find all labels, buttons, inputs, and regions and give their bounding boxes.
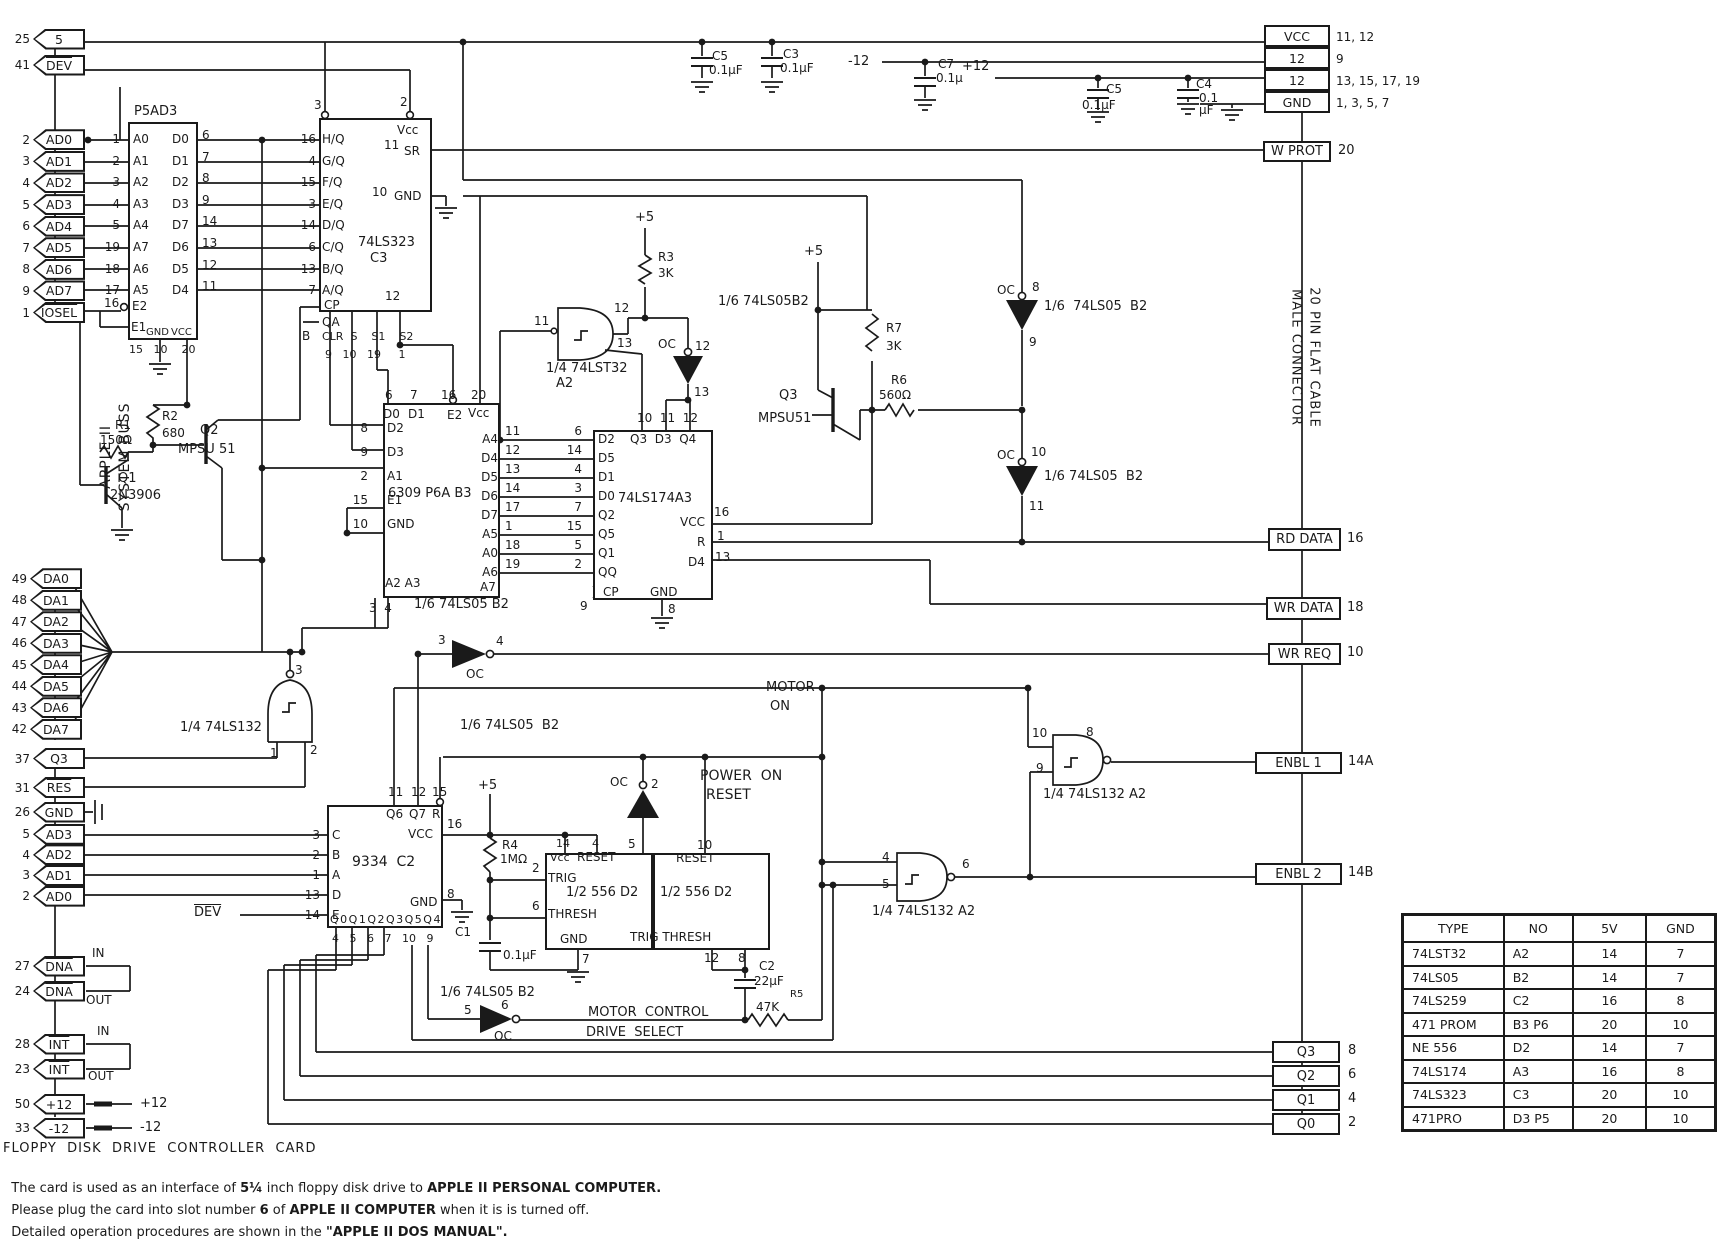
bus-pin-number: 49 bbox=[5, 572, 27, 586]
bus-tag: 8 AD6 bbox=[8, 259, 85, 281]
enbl1-in2-pin: 9 bbox=[1036, 762, 1044, 775]
timer1-thresh-pin: 6 bbox=[532, 900, 540, 913]
latch9334-left-pins: 3211314 bbox=[300, 825, 320, 925]
prom-bottom-pins: 15 10 20 bbox=[129, 344, 195, 356]
c1-val: 0.1μF bbox=[503, 949, 537, 962]
connector-enbl1-pin: 14A bbox=[1348, 755, 1373, 769]
motor-on-label-1: MOTOR bbox=[766, 681, 815, 695]
oc8-label: 1/6 74LS05 B2 bbox=[1044, 300, 1147, 314]
inv-top-oc: OC bbox=[658, 338, 676, 351]
connector-power-row: GND 1, 3, 5, 7 bbox=[1264, 92, 1420, 114]
enbl2-in2-pin: 5 bbox=[882, 878, 890, 891]
ls323-qa: QA bbox=[322, 316, 340, 329]
ls174-d4-pin: 13 bbox=[715, 551, 730, 564]
c2-ref: C2 bbox=[759, 960, 775, 973]
timer1-trig-pin: 2 bbox=[532, 862, 540, 875]
bus-tag-shape: AD1 bbox=[33, 151, 85, 172]
q1-ref: Q1 bbox=[118, 472, 137, 486]
bus-top-tags: 25 5 41 DEV bbox=[8, 28, 85, 80]
timer1-out-pin: 5 bbox=[628, 838, 636, 851]
bus-pin-number: 3 bbox=[8, 154, 30, 168]
motor-inv-out-pin: 6 bbox=[501, 999, 509, 1012]
plus5-q3: +5 bbox=[804, 245, 823, 259]
parts-table-header: TYPE NO 5V GND bbox=[1403, 915, 1715, 942]
timer2-pin12: 12 bbox=[704, 952, 719, 965]
prom-right-labels: D0D1D2D3D7D6D5D4 bbox=[172, 129, 189, 302]
latch9334-top-pin-r: 15 bbox=[432, 786, 447, 799]
ls174-r: R bbox=[697, 536, 705, 549]
prom-right-pins: 678914131211 bbox=[202, 125, 217, 298]
bus-tag: 3 AD1 bbox=[8, 151, 85, 173]
bus-tag-dna-in: 27DNA bbox=[8, 955, 85, 977]
bus-tag-shape: IOSEL bbox=[33, 302, 85, 323]
ls174-row-labels: D2D5D1D0Q2Q5Q1QQ bbox=[598, 430, 617, 582]
bus-tag: 9 AD7 bbox=[8, 280, 85, 302]
enbl2-gate-label: 1/4 74LS132 A2 bbox=[872, 905, 975, 919]
ls174-row-pins: 6144371552 bbox=[558, 422, 582, 574]
ls174-gnd-pin: 8 bbox=[668, 603, 676, 616]
connector-q0: Q0 bbox=[1272, 1113, 1340, 1135]
c4-ref: C4 bbox=[1196, 78, 1212, 91]
inv-top-out-pin: 13 bbox=[694, 386, 709, 399]
p12-label: +12 bbox=[140, 1097, 167, 1111]
bus-pin-number: 4 bbox=[8, 176, 30, 190]
dna-out-label: OUT bbox=[86, 994, 112, 1007]
r3-val: 3K bbox=[658, 267, 674, 280]
c7-val: 0.1μ bbox=[936, 72, 963, 85]
bus-tag-shape: RES bbox=[33, 777, 85, 798]
ls323-pins: 164153146137 bbox=[294, 129, 316, 302]
rom6309-top-pin-d1: 7 bbox=[410, 389, 418, 402]
por-inv-label: 1/6 74LS05 B2 bbox=[460, 719, 559, 733]
bus-tag: 49 DA0 bbox=[5, 568, 82, 590]
r6-val: 560Ω bbox=[879, 389, 911, 402]
bus-pin-number: 31 bbox=[8, 781, 30, 795]
connector-wrreq-pin: 10 bbox=[1347, 646, 1364, 660]
bus-pin-number: 43 bbox=[5, 701, 27, 715]
r7-val: 3K bbox=[886, 340, 902, 353]
bus-tag-shape: GND bbox=[33, 802, 85, 823]
bus-tag-shape: DA2 bbox=[30, 611, 82, 632]
connector-power-pins: 9 bbox=[1336, 52, 1344, 66]
bus-tag-dna-out: 24DNA bbox=[8, 980, 85, 1002]
ls323-labels: H/QG/QF/QE/QD/QC/QB/QA/Q bbox=[322, 129, 345, 302]
connector-wrreq: WR REQ bbox=[1268, 643, 1341, 665]
rom6309-row-pins: 111213141711819 bbox=[505, 422, 520, 574]
bus-pin-number: 5 bbox=[8, 198, 30, 212]
prom-left-labels: A0A1A2A3A4A7A6A5 bbox=[133, 129, 149, 302]
ls323-bottom-labels: CLR S S1 S2 bbox=[322, 331, 413, 343]
r2-val: 680 bbox=[162, 427, 185, 440]
r5-ref: R5 bbox=[790, 990, 803, 1001]
ls174-gnd: GND bbox=[650, 586, 678, 599]
connector-power-label: 12 bbox=[1264, 69, 1330, 91]
connector-power-row: 12 9 bbox=[1264, 48, 1420, 70]
connector-power-pins: 1, 3, 5, 7 bbox=[1336, 96, 1389, 110]
connector-wprot: W PROT bbox=[1263, 141, 1331, 162]
caption-line-4: Detailed operation procedures are shown … bbox=[3, 1210, 508, 1240]
timer1-trig: TRIG bbox=[548, 872, 577, 885]
rom6309-left-pins: 8921510 bbox=[352, 416, 368, 536]
bus-pin-number: 3 bbox=[8, 868, 30, 882]
rom6309-vcc: Vcc bbox=[468, 407, 489, 420]
bus-tag-shape: AD6 bbox=[33, 259, 85, 280]
c3-ref: C3 bbox=[783, 48, 799, 61]
bus-tag: 47 DA2 bbox=[5, 611, 82, 633]
oc10-pin-top: 10 bbox=[1031, 446, 1046, 459]
connector-power-label: 12 bbox=[1264, 47, 1330, 69]
r6-ref: R6 bbox=[891, 374, 907, 387]
oc10-oc: OC bbox=[997, 449, 1015, 462]
bus-pin-number: 7 bbox=[8, 241, 30, 255]
minus12-label: -12 bbox=[848, 55, 869, 69]
prom-gnd: GND bbox=[146, 328, 169, 339]
parts-table-row: 74LS174 A3 16 8 bbox=[1403, 1060, 1715, 1084]
parts-table-row: 471 PROM B3 P6 20 10 bbox=[1403, 1013, 1715, 1037]
connector-q2: Q2 bbox=[1272, 1065, 1340, 1087]
latch9334-title: 9334 C2 bbox=[352, 855, 415, 870]
ls323-sr: SR bbox=[404, 145, 420, 158]
connector-power-rows: VCC 11, 12 12 9 12 13, 15, 17, 19 GND 1,… bbox=[1264, 26, 1420, 114]
q3-ref: Q3 bbox=[779, 389, 798, 403]
bus-tag: 3 AD1 bbox=[8, 865, 85, 886]
timer1-vcc: Vcc bbox=[550, 852, 570, 864]
ls323-cp-pin: 12 bbox=[385, 290, 400, 303]
timer2-title: 1/2 556 D2 bbox=[660, 886, 732, 900]
connector-q0-pin: 2 bbox=[1348, 1116, 1356, 1130]
connector-enbl2: ENBL 2 bbox=[1255, 863, 1342, 885]
bus-tag-shape: DA5 bbox=[30, 676, 82, 697]
por-oc: OC bbox=[610, 776, 628, 789]
bus-tag: 5 AD3 bbox=[8, 194, 85, 216]
bus-pin-number: 8 bbox=[8, 262, 30, 276]
timer2-pin8: 8 bbox=[738, 952, 746, 965]
motor-inv-label: 1/6 74LS05 B2 bbox=[440, 986, 535, 1000]
connector-wrdata-pin: 18 bbox=[1347, 601, 1364, 615]
rom6309-e2: E2 bbox=[447, 409, 462, 422]
connector-power-pins: 11, 12 bbox=[1336, 30, 1374, 44]
bus-pin-number: 1 bbox=[8, 306, 30, 320]
r4-val: 1MΩ bbox=[500, 853, 527, 866]
ls174-vcc: VCC bbox=[680, 516, 705, 529]
ls174-vcc-pin: 16 bbox=[714, 506, 729, 519]
inv-top-in-pin: 12 bbox=[695, 340, 710, 353]
bus-tag: 1 IOSEL bbox=[8, 302, 85, 324]
prom-title: P5AD3 bbox=[134, 105, 177, 119]
bus-tag-shape: AD2 bbox=[33, 844, 85, 865]
bus-pin-number: 2 bbox=[8, 889, 30, 903]
connector-power-row: 12 13, 15, 17, 19 bbox=[1264, 70, 1420, 92]
ls174-top-labels: Q3 D3 Q4 bbox=[630, 433, 696, 446]
c5a-ref: C5 bbox=[712, 50, 728, 63]
bus-pin-number: 42 bbox=[5, 722, 27, 736]
inv-top-label: 1/6 74LS05B2 bbox=[718, 295, 809, 309]
parts-table-row: 74LS05 B2 14 7 bbox=[1403, 966, 1715, 990]
motor-inv-in-pin: 5 bbox=[464, 1004, 472, 1017]
parts-table: TYPE NO 5V GND 74LST32 A2 14 7 74LS05 B2… bbox=[1401, 913, 1717, 1132]
bus-pin-number: 47 bbox=[5, 615, 27, 629]
bus-tag: 46 DA3 bbox=[5, 633, 82, 655]
bus-pin-number: 26 bbox=[8, 805, 30, 819]
connector-q1-pin: 4 bbox=[1348, 1092, 1356, 1106]
connector-power-pins: 13, 15, 17, 19 bbox=[1336, 74, 1420, 88]
wrreq-out-pin: 4 bbox=[496, 635, 504, 648]
power-on-reset-1: POWER ON bbox=[700, 769, 782, 784]
oc8-pin-bot: 9 bbox=[1029, 336, 1037, 349]
bus-tag-shape: AD3 bbox=[33, 824, 85, 845]
ls132a-in2-pin: 2 bbox=[310, 744, 318, 757]
connector-rddata-pin: 16 bbox=[1347, 532, 1364, 546]
schematic-sheet: 25 5 41 DEV 2 AD0 3 AD1 4 AD2 5 AD3 6 AD… bbox=[0, 0, 1723, 1260]
latch9334-top-pin-q6: 11 bbox=[388, 786, 403, 799]
ls132a-in1-pin: 1 bbox=[270, 747, 278, 760]
connector-power-row: VCC 11, 12 bbox=[1264, 26, 1420, 48]
bus-tag-shape: DA1 bbox=[30, 590, 82, 611]
bus-tag-int-in: 28INT bbox=[8, 1033, 85, 1055]
parts-table-body: 74LST32 A2 14 7 74LS05 B2 14 7 74LS259 C… bbox=[1403, 942, 1715, 1130]
apple-bus-vertical-label: APPLE IISYSTEM BUSS bbox=[97, 372, 135, 542]
int-in-label: IN bbox=[97, 1025, 110, 1038]
plus5-r4: +5 bbox=[478, 779, 497, 793]
bus-tag-shape: DA3 bbox=[30, 633, 82, 654]
latch9334-gnd-pin: 8 bbox=[447, 888, 455, 901]
connector-power-label: VCC bbox=[1264, 25, 1330, 47]
bus-ctrl-tags: 37 Q3 31 RES bbox=[8, 744, 85, 802]
bus-pin-number: 46 bbox=[5, 636, 27, 650]
bus-tag-m12: 33-12 bbox=[8, 1117, 85, 1139]
c7-ref: C7 bbox=[938, 58, 954, 71]
bus-tag: 4 AD2 bbox=[8, 172, 85, 194]
bus-pin-number: 45 bbox=[5, 658, 27, 672]
bus-tag-shape: DA6 bbox=[30, 697, 82, 718]
wrreq-oc: OC bbox=[466, 668, 484, 681]
latch9334-top-pin-q7: 12 bbox=[411, 786, 426, 799]
parts-table-row: 74LS323 C3 20 10 bbox=[1403, 1083, 1715, 1107]
t32-gate-label: 1/4 74LST32 bbox=[546, 362, 628, 376]
oc8-pin-top: 8 bbox=[1032, 281, 1040, 294]
rom6309-bottom: A2 A3 bbox=[385, 577, 421, 590]
bus-data-tags: 49 DA0 48 DA1 47 DA2 46 DA3 45 DA4 44 DA… bbox=[5, 568, 82, 740]
prom-e1: E1 bbox=[131, 321, 146, 334]
q3-val: MPSU51 bbox=[758, 412, 811, 426]
wrreq-inv-label: 1/6 74LS05 B2 bbox=[414, 598, 509, 612]
bus-tag: 45 DA4 bbox=[5, 654, 82, 676]
rom6309-a7: A7 bbox=[480, 581, 496, 594]
bus-tag-shape: AD0 bbox=[33, 129, 85, 150]
ls323-b: B bbox=[302, 330, 310, 343]
q2-ref: Q2 bbox=[200, 424, 219, 438]
bus-pin-number: 2 bbox=[8, 133, 30, 147]
rom6309-row-labels: A4D4D5D6D7A5A0A6 bbox=[455, 430, 498, 582]
c4-val2: μF bbox=[1199, 104, 1214, 117]
ls132a-label: 1/4 74LS132 bbox=[180, 721, 262, 735]
bus-tag-shape: AD0 bbox=[33, 886, 85, 907]
ls323-no: C3 bbox=[370, 252, 387, 266]
ls174-d4: D4 bbox=[688, 556, 705, 569]
timer1-reset-pin: 4 bbox=[592, 838, 599, 850]
connector-enbl1: ENBL 1 bbox=[1255, 752, 1342, 774]
ls174-r-pin: 1 bbox=[717, 530, 725, 543]
bus-pin-number: 48 bbox=[5, 593, 27, 607]
enbl1-out-pin: 8 bbox=[1086, 726, 1094, 739]
enbl1-in1-pin: 10 bbox=[1032, 727, 1047, 740]
timer1-gnd: GND bbox=[560, 933, 588, 946]
ls323-gnd: GND bbox=[394, 190, 422, 203]
bus-tag-shape: DA0 bbox=[30, 568, 82, 589]
parts-table-row: 74LS259 C2 16 8 bbox=[1403, 989, 1715, 1013]
enbl1-gate-label: 1/4 74LS132 A2 bbox=[1043, 788, 1146, 802]
ls323-vcc: Vcc bbox=[397, 124, 418, 137]
rom6309-top-pin-vcc: 20 bbox=[471, 389, 486, 402]
r4-ref: R4 bbox=[502, 839, 518, 852]
bus-tag: 2 AD0 bbox=[8, 129, 85, 151]
timer1-vcc-pin: 14 bbox=[556, 838, 570, 850]
bus-tag: 43 DA6 bbox=[5, 697, 82, 719]
r1-ref: R1 bbox=[115, 419, 131, 432]
ls323-sr-pin: 11 bbox=[384, 139, 399, 152]
wrreq-in-pin: 3 bbox=[438, 634, 446, 647]
bus-tag: 44 DA5 bbox=[5, 676, 82, 698]
ls323-bottom-pins: 9 10 19 1 bbox=[325, 349, 405, 361]
c1-ref: C1 bbox=[455, 926, 471, 939]
bus-tag: 31 RES bbox=[8, 773, 85, 802]
bus-tag: 37 Q3 bbox=[8, 744, 85, 773]
connector-q2-pin: 6 bbox=[1348, 1068, 1356, 1082]
bus-addr-tags: 2 AD0 3 AD1 4 AD2 5 AD3 6 AD4 7 AD5 8 AD… bbox=[8, 129, 85, 323]
bus-pin-number: 6 bbox=[8, 219, 30, 233]
c3-val: 0.1μF bbox=[780, 62, 814, 75]
parts-table-row: NE 556 D2 14 7 bbox=[1403, 1036, 1715, 1060]
ls174-cp: CP bbox=[603, 586, 619, 599]
bus-tag: 25 5 bbox=[8, 28, 85, 50]
bus-tag: 2 AD0 bbox=[8, 886, 85, 907]
bus-tag-shape: AD2 bbox=[33, 172, 85, 193]
bus-tag-shape: Q3 bbox=[33, 748, 85, 769]
latch9334-vcc-pin: 16 bbox=[447, 818, 462, 831]
rom6309-top-pin-e2: 16 bbox=[441, 389, 456, 402]
bus-tag: 5 AD3 bbox=[8, 824, 85, 845]
bus-pin-number: 37 bbox=[8, 752, 30, 766]
timer1-title: 1/2 556 D2 bbox=[566, 886, 638, 900]
enbl2-in1-pin: 4 bbox=[882, 851, 890, 864]
caption-title: FLOPPY DISK DRIVE CONTROLLER CARD bbox=[3, 1141, 316, 1156]
timer1-thresh: THRESH bbox=[548, 908, 597, 921]
latch9334-bottom-pins: 4 5 6 7 10 9 bbox=[332, 933, 433, 945]
ls174-title: 74LS174A3 bbox=[618, 492, 692, 506]
bus-tag-shape: AD7 bbox=[33, 280, 85, 301]
bus-tag: 41 DEV bbox=[8, 54, 85, 76]
t32-in-pin: 11 bbox=[534, 315, 549, 328]
dev-signal-label: DEV bbox=[194, 906, 221, 920]
int-out-label: OUT bbox=[88, 1070, 114, 1083]
ls323-g2-pin: 3 bbox=[314, 99, 322, 112]
bus-pin-number: 9 bbox=[8, 284, 30, 298]
latch9334-bottom-labels: Q0Q1Q2Q3Q5Q4 bbox=[330, 914, 442, 926]
ls323-title: 74LS323 bbox=[358, 236, 415, 250]
r5-val: 47K bbox=[756, 1001, 779, 1014]
connector-q1: Q1 bbox=[1272, 1089, 1340, 1111]
bus-tag-shape: AD5 bbox=[33, 237, 85, 258]
power-on-reset-2: RESET bbox=[706, 788, 751, 803]
bus-tag-shape: DA4 bbox=[30, 654, 82, 675]
c5b-ref: C5 bbox=[1106, 83, 1122, 96]
por-out-pin: 2 bbox=[651, 778, 659, 791]
parts-table-row: 471PRO D3 P5 20 10 bbox=[1403, 1107, 1715, 1131]
bus-tag-shape: 5 bbox=[33, 29, 85, 50]
motor-inv-oc: OC bbox=[494, 1030, 512, 1043]
latch9334-gnd: GND bbox=[410, 896, 438, 909]
c5a-val: 0.1μF bbox=[709, 64, 743, 77]
timer2-reset: RESET bbox=[676, 852, 714, 865]
bus-pin-number: 41 bbox=[8, 58, 30, 72]
latch9334-vcc: VCC bbox=[408, 828, 433, 841]
bus-tag-shape: AD1 bbox=[33, 865, 85, 886]
oc8-oc: OC bbox=[997, 284, 1015, 297]
r3-ref: R3 bbox=[658, 251, 674, 264]
ls174-top-pins: 10 11 12 bbox=[637, 412, 698, 425]
bus-pin-number: 25 bbox=[8, 32, 30, 46]
bus-tag: 4 AD2 bbox=[8, 845, 85, 866]
bus-tag-shape: DEV bbox=[33, 55, 85, 76]
bus-pin-number: 44 bbox=[5, 679, 27, 693]
ls323-gnd-pin: 10 bbox=[372, 186, 387, 199]
enbl2-out-pin: 6 bbox=[962, 858, 970, 871]
prom-vcc: VCC bbox=[171, 328, 192, 339]
bus-tag-gnd: 26 GND bbox=[8, 801, 85, 823]
bus-tag-int-out: 23INT bbox=[8, 1058, 85, 1080]
rom6309-top-pin-d0: 6 bbox=[385, 389, 393, 402]
bus-tag-shape: DA7 bbox=[30, 719, 82, 740]
q2-val: MPSU 51 bbox=[178, 443, 236, 457]
ls323-cp: CP bbox=[324, 299, 340, 312]
rom6309-left-labels: D2D3A1E1GND bbox=[387, 416, 415, 536]
bus-tag-shape: AD3 bbox=[33, 194, 85, 215]
oc10-label: 1/6 74LS05 B2 bbox=[1044, 470, 1143, 484]
connector-power-label: GND bbox=[1264, 91, 1330, 113]
latch9334-left-labels: CBADE bbox=[332, 825, 341, 925]
r2-ref: R2 bbox=[162, 410, 178, 423]
prom-left-pins: 12345191817 bbox=[92, 129, 120, 302]
connector-wrdata: WR DATA bbox=[1266, 597, 1341, 620]
t32-aux-pin: 13 bbox=[617, 337, 632, 350]
timer1-gnd-pin: 7 bbox=[582, 953, 590, 966]
bus-tag: 6 AD4 bbox=[8, 215, 85, 237]
parts-table-row: 74LST32 A2 14 7 bbox=[1403, 942, 1715, 966]
c2-val: 22μF bbox=[754, 975, 784, 988]
bus-tag: 48 DA1 bbox=[5, 590, 82, 612]
connector-wprot-pin: 20 bbox=[1338, 144, 1355, 158]
r7-ref: R7 bbox=[886, 322, 902, 335]
bus-tag-shape: AD4 bbox=[33, 216, 85, 237]
bus-addr2-tags: 5 AD3 4 AD2 3 AD1 2 AD0 bbox=[8, 824, 85, 906]
plus5-r3: +5 bbox=[635, 211, 654, 225]
motor-on-label-2: ON bbox=[770, 700, 790, 714]
timer1-reset: RESET bbox=[577, 851, 615, 864]
connector-q3-pin: 8 bbox=[1348, 1044, 1356, 1058]
t32-gate-no: A2 bbox=[556, 377, 573, 391]
bus-pin-number: 4 bbox=[8, 848, 30, 862]
latch9334-q7: Q7 bbox=[409, 808, 426, 821]
prom-e2-pin: 16 bbox=[104, 297, 119, 310]
rom6309-bottom-pins: 3 4 bbox=[369, 602, 392, 615]
dna-in-label: IN bbox=[92, 947, 105, 960]
r1-val: 150Ω bbox=[100, 434, 132, 447]
connector-q3: Q3 bbox=[1272, 1041, 1340, 1063]
drive-select-label: DRIVE SELECT bbox=[586, 1026, 683, 1040]
ls323-g1-pin: 2 bbox=[400, 96, 408, 109]
bus-pin-number: 5 bbox=[8, 827, 30, 841]
latch9334-q6: Q6 bbox=[386, 808, 403, 821]
